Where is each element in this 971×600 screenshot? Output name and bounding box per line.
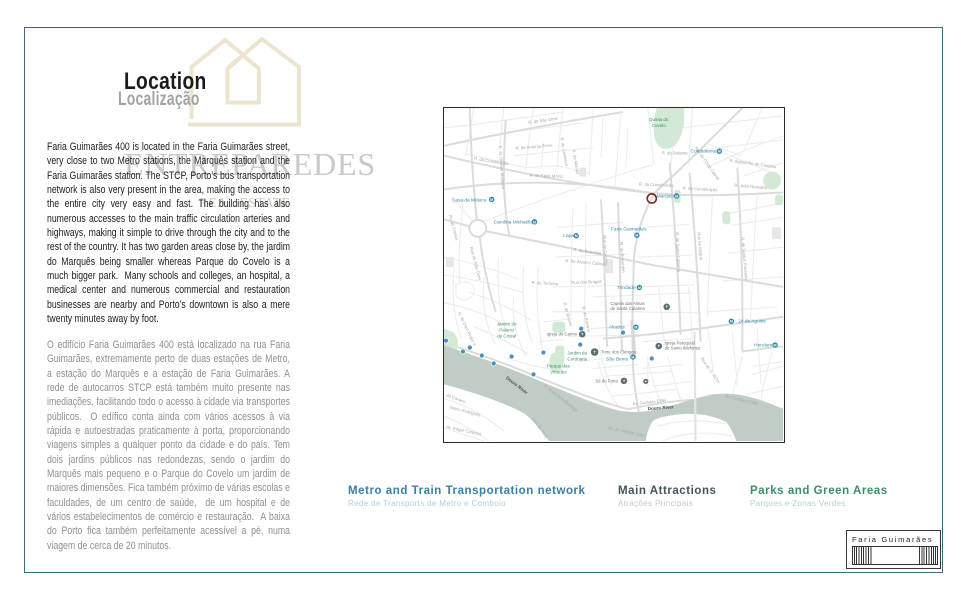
svg-text:✝: ✝	[593, 350, 596, 355]
svg-text:M: M	[634, 326, 637, 330]
svg-text:Carolina Michaëlis: Carolina Michaëlis	[494, 219, 534, 225]
svg-text:de Santo Ildefonso: de Santo Ildefonso	[665, 346, 701, 351]
svg-text:Casa da Música: Casa da Música	[452, 197, 487, 203]
svg-text:Covelo: Covelo	[652, 123, 666, 128]
svg-text:M: M	[774, 344, 777, 348]
svg-text:M: M	[675, 194, 678, 198]
svg-text:✝: ✝	[622, 379, 625, 383]
svg-text:Aliados: Aliados	[609, 325, 625, 331]
svg-text:Quinta do: Quinta do	[649, 117, 669, 122]
svg-text:M: M	[730, 320, 733, 324]
svg-text:Heroísmo: Heroísmo	[754, 343, 775, 349]
svg-text:Jardim da: Jardim da	[567, 351, 587, 356]
svg-text:24 de Agoste: 24 de Agoste	[738, 319, 766, 325]
svg-text:✝: ✝	[657, 344, 660, 348]
svg-text:R. de Bolama: R. de Bolama	[662, 151, 688, 156]
svg-text:de Cristal: de Cristal	[497, 334, 516, 339]
svg-text:✝: ✝	[581, 333, 584, 337]
svg-text:M: M	[638, 286, 641, 290]
svg-text:Jardim do: Jardim do	[497, 322, 517, 327]
svg-text:✝: ✝	[665, 305, 668, 309]
svg-text:Sé do Porto: Sé do Porto	[595, 378, 618, 383]
svg-text:São Bento: São Bento	[606, 356, 629, 362]
svg-text:Igreja do Carmo: Igreja do Carmo	[547, 332, 578, 337]
svg-text:Torre dos Clérigos: Torre dos Clérigos	[601, 350, 636, 355]
svg-text:Cordoaria: Cordoaria	[567, 356, 587, 361]
svg-text:Lapa: Lapa	[563, 233, 574, 239]
svg-text:M: M	[533, 220, 536, 224]
svg-text:Rua dos Bragas: Rua dos Bragas	[571, 279, 602, 285]
svg-text:M: M	[635, 234, 638, 238]
svg-text:Combatentes: Combatentes	[691, 149, 720, 155]
svg-text:Virtudes: Virtudes	[550, 369, 567, 374]
svg-text:Marquês: Marquês	[657, 193, 676, 199]
svg-text:M: M	[631, 355, 634, 359]
svg-text:Trindade: Trindade	[617, 285, 636, 291]
svg-text:M: M	[490, 198, 493, 202]
svg-text:Parque das: Parque das	[547, 363, 571, 368]
svg-text:Faria Guimarães: Faria Guimarães	[611, 226, 647, 232]
svg-text:M: M	[575, 234, 578, 238]
svg-text:Palacio: Palacio	[499, 328, 514, 333]
svg-text:de Santa Catarina: de Santa Catarina	[610, 306, 645, 311]
svg-text:M: M	[718, 150, 721, 154]
